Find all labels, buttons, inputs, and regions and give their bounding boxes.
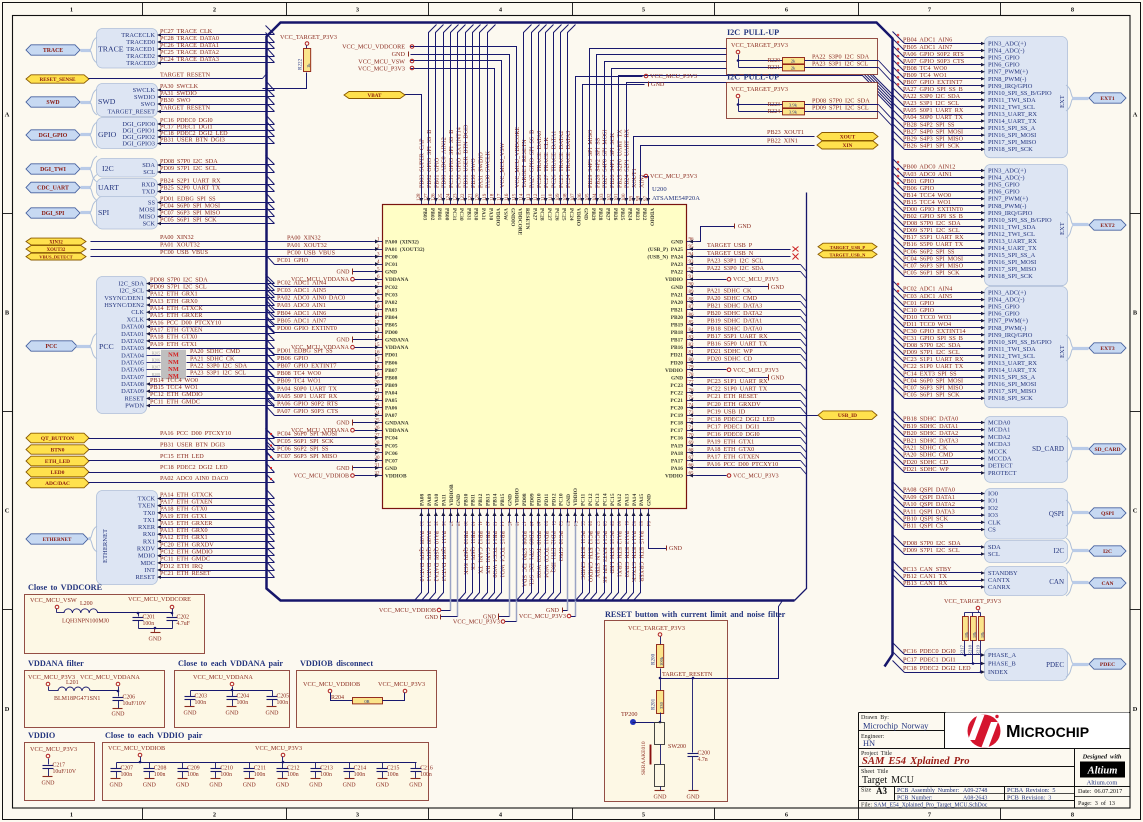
svg-text:69: 69 [689, 441, 695, 446]
svg-text:PC02: PC02 [385, 285, 398, 291]
svg-text:CLK: CLK [131, 309, 144, 316]
svg-text:VSW: VSW [502, 208, 508, 221]
svg-text:PB09 TC4 WO1: PB09 TC4 WO1 [903, 72, 947, 79]
svg-text:PHASE_B: PHASE_B [988, 661, 1016, 668]
svg-text:68: 68 [689, 449, 695, 454]
svg-text:PIN14_UART_TX: PIN14_UART_TX [988, 245, 1037, 252]
svg-text:PD09 S7P1 I2C SCL: PD09 S7P1 I2C SCL [903, 227, 960, 234]
svg-text:TRACED0: TRACED0 [126, 39, 155, 46]
svg-text:81: 81 [689, 351, 695, 356]
svg-text:PA30 SWCLK: PA30 SWCLK [160, 83, 199, 90]
svg-text:PC19 USB ID: PC19 USB ID [707, 408, 746, 415]
svg-text:94: 94 [689, 252, 695, 257]
svg-text:Altium.com: Altium.com [1087, 780, 1118, 787]
svg-text:PA30 SWCLK: PA30 SWCLK [486, 150, 492, 188]
svg-text:GND: GND [671, 285, 683, 291]
svg-text:100n: 100n [121, 772, 133, 778]
svg-text:100n: 100n [195, 700, 207, 706]
svg-text:GND: GND [112, 712, 126, 718]
svg-text:MDC: MDC [140, 560, 155, 567]
svg-text:PIN12_TWI_SCL: PIN12_TWI_SCL [988, 104, 1035, 111]
svg-text:DGI_SPI: DGI_SPI [42, 211, 66, 217]
svg-text:PIN15_SPI_SS_A: PIN15_SPI_SS_A [988, 374, 1036, 381]
svg-text:PA04 S0P0 UART TX: PA04 S0P0 UART TX [903, 114, 963, 121]
svg-text:70: 70 [689, 434, 695, 439]
svg-text:SDA: SDA [142, 162, 155, 169]
svg-text:100n: 100n [320, 772, 332, 778]
svg-text:PB10 QSPI SCK: PB10 QSPI SCK [903, 516, 949, 523]
svg-text:VCC_MCU_P3V3: VCC_MCU_P3V3 [453, 619, 500, 626]
svg-text:PB27 S4P0 SPI MOSI: PB27 S4P0 SPI MOSI [603, 130, 609, 188]
svg-text:33: 33 [418, 521, 423, 527]
svg-text:RESET_SENSE: RESET_SENSE [39, 77, 76, 83]
svg-text:1: 1 [70, 7, 73, 14]
svg-text:PC31: PC31 [451, 208, 457, 221]
svg-text:PB10: PB10 [463, 493, 469, 506]
svg-text:10k: 10k [980, 631, 985, 638]
svg-text:PA16: PA16 [671, 466, 683, 472]
svg-text:PIN9_IRQ/GPIO: PIN9_IRQ/GPIO [988, 83, 1033, 90]
svg-text:DATA00: DATA00 [121, 324, 144, 331]
svg-text:76: 76 [689, 388, 695, 393]
svg-text:PIN11_TWI_SDA: PIN11_TWI_SDA [988, 224, 1036, 231]
svg-text:DGI_TWI: DGI_TWI [40, 167, 67, 173]
svg-text:26: 26 [375, 426, 381, 431]
svg-text:SD_CARD: SD_CARD [1032, 445, 1064, 453]
svg-text:4.7n: 4.7n [698, 757, 708, 763]
svg-text:Close to each VDDANA pair: Close to each VDDANA pair [178, 659, 283, 668]
svg-text:PB27: PB27 [605, 208, 611, 221]
svg-text:GND: GND [392, 51, 406, 58]
svg-text:VCC_TARGET_P3V3: VCC_TARGET_P3V3 [731, 86, 788, 93]
svg-text:C214: C214 [354, 765, 367, 771]
svg-text:PB16: PB16 [671, 345, 684, 351]
svg-text:R206: R206 [152, 359, 160, 363]
svg-text:PCBA Revision: 5: PCBA Revision: 5 [1007, 787, 1056, 794]
svg-text:22: 22 [375, 396, 381, 401]
svg-text:C209: C209 [187, 765, 200, 771]
svg-text:PB15 TCC4 WO1: PB15 TCC4 WO1 [150, 384, 198, 391]
svg-text:PB02 GPIO SPI SS B: PB02 GPIO SPI SS B [903, 213, 963, 220]
svg-text:R204: R204 [331, 695, 344, 701]
svg-text:PA05 S0P1 UART RX: PA05 S0P1 UART RX [903, 107, 964, 114]
svg-text:XOUT1: XOUT1 [632, 168, 638, 188]
svg-text:PB02 GPIO SPI SS B: PB02 GPIO SPI SS B [427, 130, 433, 188]
svg-text:PB22 XIN1: PB22 XIN1 [767, 138, 798, 145]
svg-text:24: 24 [375, 411, 381, 416]
svg-text:QSPI: QSPI [1101, 511, 1114, 517]
svg-text:GND: GND [309, 783, 323, 789]
svg-text:PB24 S2P1 UART RX: PB24 S2P1 UART RX [625, 128, 631, 188]
svg-text:PIN15_SPI_SS_A: PIN15_SPI_SS_A [988, 252, 1036, 259]
svg-text:TARGET_RESETN: TARGET_RESETN [662, 671, 713, 678]
svg-text:SCK: SCK [143, 221, 156, 228]
svg-text:XIN: XIN [843, 143, 853, 149]
svg-text:PD08 S7P0 I2C SDA: PD08 S7P0 I2C SDA [903, 540, 961, 547]
svg-text:PA09 QSPI DATA1: PA09 QSPI DATA1 [903, 494, 955, 501]
svg-text:90: 90 [689, 283, 695, 288]
svg-text:VCC_MCU_P3V3: VCC_MCU_P3V3 [733, 474, 779, 480]
svg-text:PA19 ETH GTX1: PA19 ETH GTX1 [160, 513, 207, 520]
svg-text:104: 104 [593, 193, 598, 201]
svg-text:39: 39 [462, 521, 467, 527]
svg-text:PA11: PA11 [442, 494, 448, 506]
svg-text:PA23 S3P1 I2C SCL: PA23 S3P1 I2C SCL [190, 370, 246, 377]
svg-text:EXT1: EXT1 [1100, 96, 1115, 102]
svg-text:RX1: RX1 [143, 538, 155, 545]
svg-text:100n: 100n [154, 772, 166, 778]
svg-text:DATA07: DATA07 [121, 374, 145, 381]
svg-text:PC20: PC20 [670, 406, 683, 412]
svg-text:3.9k: 3.9k [789, 109, 798, 114]
svg-text:PCB Number:: PCB Number: [897, 796, 933, 802]
svg-text:PIN17_SPI_MISO: PIN17_SPI_MISO [988, 139, 1037, 146]
svg-text:PB18 SDHC DATA0: PB18 SDHC DATA0 [903, 416, 958, 423]
svg-text:PIN14_UART_TX: PIN14_UART_TX [988, 367, 1037, 374]
svg-text:PA23 S3P1 I2C SCL: PA23 S3P1 I2C SCL [903, 100, 959, 107]
svg-text:PIN16_SPI_MOSI: PIN16_SPI_MOSI [988, 132, 1036, 139]
svg-text:23: 23 [375, 403, 381, 408]
svg-text:PC28 TRACE DATA0: PC28 TRACE DATA0 [160, 35, 219, 42]
svg-text:Drawn By:: Drawn By: [861, 715, 889, 721]
svg-text:C203: C203 [195, 693, 208, 699]
svg-text:87: 87 [689, 305, 695, 310]
svg-text:PC25 TRACE DATA2: PC25 TRACE DATA2 [160, 49, 219, 56]
svg-text:A08-2643: A08-2643 [963, 796, 987, 802]
svg-text:96: 96 [689, 237, 695, 242]
svg-text:PC04 S6P0 SPI MOSI: PC04 S6P0 SPI MOSI [160, 202, 220, 209]
svg-text:PD10 TCC0 WO3: PD10 TCC0 WO3 [903, 314, 951, 321]
svg-text:PB21: PB21 [671, 307, 684, 313]
svg-text:82: 82 [689, 343, 695, 348]
svg-text:DATA09: DATA09 [121, 388, 144, 395]
svg-text:TXEN: TXEN [138, 503, 155, 510]
svg-text:10: 10 [375, 305, 381, 310]
svg-text:A3: A3 [876, 786, 887, 796]
svg-text:EXT2: EXT2 [1100, 223, 1115, 229]
svg-text:PB17 S5P1 UART RX: PB17 S5P1 UART RX [903, 234, 964, 241]
svg-text:PA31: PA31 [480, 208, 486, 220]
svg-text:95: 95 [689, 245, 695, 250]
svg-text:92: 92 [689, 268, 695, 273]
svg-text:CANTX: CANTX [988, 577, 1010, 584]
svg-text:TX0: TX0 [143, 510, 155, 517]
svg-text:SWO: SWO [141, 101, 156, 108]
svg-text:PA23 S3P1 I2C SCL: PA23 S3P1 I2C SCL [812, 61, 868, 68]
svg-text:(USB_N) PA24: (USB_N) PA24 [647, 254, 683, 261]
svg-text:C: C [1133, 508, 1138, 515]
svg-text:PD08 S7P0 I2C SDA: PD08 S7P0 I2C SDA [903, 342, 961, 349]
svg-text:36: 36 [440, 521, 445, 527]
svg-text:CAN: CAN [1049, 578, 1064, 586]
svg-text:PC07: PC07 [385, 458, 398, 464]
svg-text:RESET: RESET [124, 395, 144, 402]
svg-text:85: 85 [689, 320, 695, 325]
svg-text:XIN32: XIN32 [49, 241, 63, 246]
svg-text:GNDANA: GNDANA [385, 338, 409, 344]
svg-text:PA22: PA22 [671, 270, 683, 276]
svg-text:PB31 USER BTN DGI3: PB31 USER BTN DGI3 [160, 136, 225, 143]
svg-text:PA23 S3P1 I2C SCL: PA23 S3P1 I2C SCL [707, 257, 763, 264]
svg-text:PC31 GPIO SPI SS B: PC31 GPIO SPI SS B [903, 335, 963, 342]
svg-text:PD09 S7P1 I2C SCL: PD09 S7P1 I2C SCL [903, 547, 960, 554]
svg-text:PD21 SDHC WP: PD21 SDHC WP [903, 466, 949, 473]
svg-text:DATA08: DATA08 [121, 381, 144, 388]
svg-text:55: 55 [579, 521, 584, 527]
svg-text:17: 17 [375, 358, 381, 363]
svg-text:IO1: IO1 [988, 498, 998, 505]
svg-text:MCDA1: MCDA1 [988, 427, 1010, 434]
svg-text:Altium: Altium [1087, 766, 1118, 777]
svg-text:15: 15 [375, 343, 381, 348]
svg-text:C200: C200 [698, 750, 711, 756]
svg-text:PB05 ADC1 AIN7: PB05 ADC1 AIN7 [277, 317, 326, 324]
svg-text:75: 75 [689, 396, 695, 401]
svg-text:GND: GND [738, 224, 752, 230]
svg-text:QT_BUTTON: QT_BUTTON [41, 436, 74, 442]
svg-text:PC26: PC26 [553, 208, 559, 221]
svg-text:PA22 S3P0 I2C SDA: PA22 S3P0 I2C SDA [707, 265, 765, 272]
svg-text:VCC_MCU_VDDCORE: VCC_MCU_VDDCORE [128, 596, 191, 603]
svg-text:TRACE: TRACE [43, 48, 63, 54]
svg-text:13: 13 [375, 328, 381, 333]
svg-text:PB15 TCC4 WO1: PB15 TCC4 WO1 [903, 199, 951, 206]
svg-text:PC04 S6P0 SPI MOSI: PC04 S6P0 SPI MOSI [903, 377, 963, 384]
svg-text:PIN5_GPIO: PIN5_GPIO [988, 304, 1020, 311]
svg-text:PC05 S6P1 SPI SCK: PC05 S6P1 SPI SCK [903, 269, 960, 276]
svg-text:PB29 S4P3 SPI MISO: PB29 S4P3 SPI MISO [903, 135, 964, 142]
svg-text:BTN0: BTN0 [51, 448, 65, 454]
svg-text:PA11 QSPI DATA3: PA11 QSPI DATA3 [903, 508, 955, 515]
svg-text:PIN13_UART_RX: PIN13_UART_RX [988, 360, 1037, 367]
svg-text:PA00 XIN32: PA00 XIN32 [160, 234, 194, 241]
svg-text:(USB_P) PA25: (USB_P) PA25 [648, 246, 683, 253]
svg-text:25: 25 [375, 419, 381, 424]
svg-text:PA03: PA03 [385, 307, 397, 313]
svg-text:VDDIOB disconnect: VDDIOB disconnect [300, 659, 373, 668]
svg-text:Close to each VDDIO pair: Close to each VDDIO pair [105, 731, 203, 740]
svg-text:PD08 S7P0 I2C SDA: PD08 S7P0 I2C SDA [150, 276, 208, 283]
svg-text:U200: U200 [652, 186, 667, 193]
svg-text:PC12 ETH GMDIO: PC12 ETH GMDIO [150, 391, 203, 398]
svg-text:88: 88 [689, 298, 695, 303]
svg-text:4.7uF: 4.7uF [177, 621, 191, 627]
svg-text:PA13: PA13 [625, 494, 631, 506]
svg-text:PA20 SDHC CMD: PA20 SDHC CMD [903, 452, 954, 459]
svg-text:PA02 ADC0 AIN0 DAC0: PA02 ADC0 AIN0 DAC0 [277, 295, 345, 302]
svg-text:100n: 100n [287, 772, 299, 778]
svg-text:PC23 S1P1 UART RX: PC23 S1P1 UART RX [707, 378, 768, 385]
svg-text:GPIO: GPIO [98, 130, 117, 139]
svg-text:PD10: PD10 [537, 493, 543, 506]
svg-text:PIN15_SPI_SS_A: PIN15_SPI_SS_A [988, 125, 1036, 132]
svg-text:PC16: PC16 [670, 436, 683, 442]
svg-text:PC00 USB VBUS: PC00 USB VBUS [160, 249, 209, 256]
svg-text:59: 59 [608, 521, 613, 527]
svg-text:14: 14 [375, 335, 381, 340]
svg-text:PC03 ADC1 AIN5: PC03 ADC1 AIN5 [277, 287, 326, 294]
svg-text:C215: C215 [387, 765, 400, 771]
svg-text:INT: INT [144, 567, 155, 574]
svg-text:5: 5 [642, 812, 645, 819]
svg-text:GND: GND [226, 711, 240, 717]
svg-text:SCL: SCL [143, 169, 155, 176]
svg-text:PB21 SDHC DATA3: PB21 SDHC DATA3 [707, 303, 762, 310]
svg-text:PC18 PDEC2 DGI2 LED: PC18 PDEC2 DGI2 LED [903, 665, 971, 672]
svg-text:C202: C202 [177, 614, 190, 620]
svg-text:PC19: PC19 [670, 413, 683, 419]
svg-text:PC15 ETH LED: PC15 ETH LED [160, 453, 204, 460]
svg-text:GND: GND [507, 494, 513, 506]
svg-text:CANRX: CANRX [988, 584, 1011, 591]
svg-text:QSPI: QSPI [1049, 510, 1065, 518]
svg-text:I2C PULL-UP: I2C PULL-UP [727, 28, 779, 37]
svg-text:TX1: TX1 [143, 517, 155, 524]
svg-text:PB25 S2P0 UART TX: PB25 S2P0 UART TX [160, 184, 221, 191]
svg-text:PA22 S3P0 I2C SDA: PA22 S3P0 I2C SDA [903, 93, 961, 100]
svg-text:PA08 QSPI DATA0: PA08 QSPI DATA0 [418, 531, 424, 581]
svg-text:PD08: PD08 [522, 493, 528, 506]
svg-text:PD21 SDHC WP: PD21 SDHC WP [707, 348, 753, 355]
svg-text:Close to VDDCORE: Close to VDDCORE [28, 583, 103, 592]
svg-text:TARGET_USB_N: TARGET_USB_N [830, 252, 867, 257]
svg-text:PA00 (XIN32): PA00 (XIN32) [385, 239, 419, 246]
svg-text:GND: GND [149, 637, 163, 643]
svg-text:PA20 SDHC CMD: PA20 SDHC CMD [707, 295, 758, 302]
svg-text:PB25: PB25 [619, 208, 625, 221]
svg-text:CS: CS [988, 527, 996, 534]
svg-text:PC04: PC04 [385, 436, 398, 442]
svg-text:GNDANA: GNDANA [385, 421, 409, 427]
svg-text:PIN17_SPI_MISO: PIN17_SPI_MISO [988, 388, 1037, 395]
svg-text:34: 34 [425, 521, 430, 527]
svg-text:PB16 S5P0 UART TX: PB16 S5P0 UART TX [903, 241, 964, 248]
svg-text:PB24: PB24 [627, 208, 633, 221]
svg-text:PA27 GPIO SPI SS B: PA27 GPIO SPI SS B [530, 130, 536, 188]
svg-text:VCC_MCU_VDDANA: VCC_MCU_VDDANA [193, 674, 253, 681]
svg-text:SD_CARD: SD_CARD [1094, 447, 1120, 453]
svg-text:Date: 06.07.2017: Date: 06.07.2017 [1078, 788, 1122, 795]
svg-text:RXDV: RXDV [137, 546, 155, 553]
svg-text:PD09 S7P1 I2C SCL: PD09 S7P1 I2C SCL [528, 531, 534, 586]
svg-text:PC07 S6P3 SPI MISO: PC07 S6P3 SPI MISO [160, 209, 221, 216]
svg-text:XCLK: XCLK [127, 316, 145, 323]
svg-text:PC27: PC27 [546, 208, 552, 221]
svg-text:PC22: PC22 [670, 391, 683, 397]
svg-text:PB14 TCC4 WO0: PB14 TCC4 WO0 [903, 192, 951, 199]
svg-text:GND: GND [42, 781, 56, 787]
svg-text:GND: GND [337, 270, 351, 276]
svg-text:VDDIO: VDDIO [495, 208, 501, 226]
svg-text:R220: R220 [767, 58, 780, 64]
svg-text:65: 65 [689, 471, 695, 476]
svg-text:PC05 S6P1 SPI SCK: PC05 S6P1 SPI SCK [277, 438, 334, 445]
svg-text:PC24 TRACE DATA3: PC24 TRACE DATA3 [160, 56, 219, 63]
svg-text:VDDANA: VDDANA [385, 428, 408, 434]
svg-text:PB20 SDHC DATA2: PB20 SDHC DATA2 [707, 310, 762, 317]
svg-text:PB14: PB14 [493, 493, 499, 506]
svg-text:PB08: PB08 [385, 375, 398, 381]
svg-text:PC17 PDEC1 DGI1: PC17 PDEC1 DGI1 [707, 423, 760, 430]
svg-text:B: B [5, 310, 10, 317]
svg-text:84: 84 [689, 328, 695, 333]
svg-text:VCC_MCU_VSW: VCC_MCU_VSW [358, 59, 405, 66]
svg-text:SWCLK: SWCLK [133, 87, 156, 94]
svg-text:PA16 PCC D00 PTCXY10: PA16 PCC D00 PTCXY10 [160, 430, 231, 437]
svg-text:PB05: PB05 [385, 323, 398, 329]
svg-text:GND: GND [143, 783, 157, 789]
svg-text:PC31 GPIO SPI SS B: PC31 GPIO SPI SS B [449, 130, 455, 188]
svg-text:RXER: RXER [138, 524, 156, 531]
svg-text:VCC_TARGET_P3V3: VCC_TARGET_P3V3 [731, 42, 788, 49]
svg-text:PC10: PC10 [559, 493, 565, 506]
svg-text:PD00 GPIO EXTINT0: PD00 GPIO EXTINT0 [277, 325, 337, 332]
svg-text:PB30: PB30 [473, 208, 479, 221]
svg-text:VCC_MCU_VDDIOB: VCC_MCU_VDDIOB [379, 607, 436, 614]
svg-text:PA21 SDHC CK: PA21 SDHC CK [903, 445, 948, 452]
svg-text:PB21 SDHC DATA3: PB21 SDHC DATA3 [903, 437, 958, 444]
svg-text:PC20 ETH GRXDV: PC20 ETH GRXDV [160, 541, 214, 548]
svg-text:PC23 S1P1 UART RX: PC23 S1P1 UART RX [903, 356, 964, 363]
svg-text:PA01 (XOUT32): PA01 (XOUT32) [385, 246, 425, 253]
svg-text:GND: GND [651, 81, 665, 88]
svg-text:PA14: PA14 [632, 494, 638, 506]
svg-text:PB00: PB00 [444, 208, 450, 221]
svg-text:TRACECLK: TRACECLK [121, 32, 155, 39]
svg-text:PC10 GPIO: PC10 GPIO [903, 307, 935, 314]
svg-text:10uF/10V: 10uF/10V [53, 769, 77, 775]
svg-text:SKRAAKE010: SKRAAKE010 [641, 741, 647, 775]
svg-text:PA27: PA27 [531, 208, 537, 220]
svg-text:PA04: PA04 [385, 391, 397, 397]
svg-text:VBAT: VBAT [367, 93, 382, 99]
svg-text:MDIO: MDIO [138, 553, 155, 560]
svg-text:VDDANA filter: VDDANA filter [28, 659, 84, 668]
svg-text:TP200: TP200 [621, 711, 638, 718]
svg-text:PC05: PC05 [385, 443, 398, 449]
svg-text:DATA03: DATA03 [121, 345, 144, 352]
svg-text:58: 58 [601, 521, 606, 527]
svg-text:PIN8_PWM(-): PIN8_PWM(-) [988, 325, 1026, 332]
svg-text:SWD: SWD [98, 97, 116, 106]
svg-text:PC05 S6P1 SPI SCK: PC05 S6P1 SPI SCK [160, 216, 217, 223]
svg-text:GND: GND [771, 285, 785, 291]
svg-text:PA15 ETH GRXER: PA15 ETH GRXER [150, 312, 203, 319]
svg-text:MCDA2: MCDA2 [988, 434, 1010, 441]
svg-text:GND: GND [456, 494, 462, 506]
svg-text:VCC_MCU_P3V3: VCC_MCU_P3V3 [650, 73, 697, 80]
svg-text:PB30 SWO: PB30 SWO [160, 97, 191, 104]
svg-text:TXCK: TXCK [138, 496, 156, 503]
svg-text:12: 12 [375, 320, 381, 325]
svg-text:PB01: PB01 [436, 208, 442, 221]
svg-text:PC18: PC18 [670, 421, 683, 427]
svg-text:PA17: PA17 [671, 458, 683, 464]
svg-text:PB20: PB20 [671, 315, 684, 321]
svg-text:PB09: PB09 [385, 383, 398, 389]
svg-text:PD09 S7P1 I2C SCL: PD09 S7P1 I2C SCL [160, 165, 217, 172]
svg-text:PIN8_PWM(-): PIN8_PWM(-) [988, 76, 1026, 83]
svg-text:A09-2748: A09-2748 [963, 788, 987, 794]
svg-text:PA21 SDHC CK: PA21 SDHC CK [707, 288, 752, 295]
svg-text:R200: R200 [651, 653, 657, 665]
svg-text:I2C_SCL: I2C_SCL [119, 288, 144, 295]
svg-text:VCC_MCU_P3V3: VCC_MCU_P3V3 [519, 613, 566, 620]
svg-text:PA22 S3P0 I2C SDA: PA22 S3P0 I2C SDA [190, 363, 248, 370]
svg-text:PA03 ADC0 AIN1: PA03 ADC0 AIN1 [277, 302, 326, 309]
svg-text:VCC_MCU_VDDANA: VCC_MCU_VDDANA [80, 674, 140, 681]
svg-text:93: 93 [689, 260, 695, 265]
